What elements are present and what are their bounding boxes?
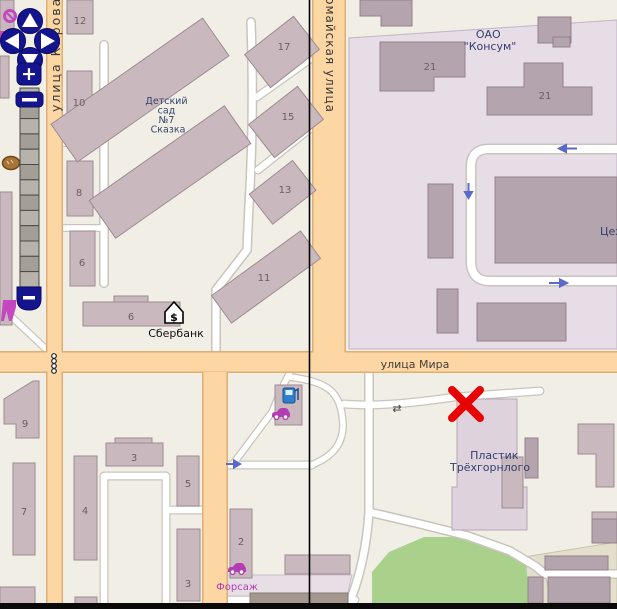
house-number: 7 [21, 507, 27, 518]
house-number: 2 [238, 537, 244, 548]
street-label-pervomayskaya: Первомайская улица [323, 0, 337, 113]
pan-up-button[interactable] [18, 9, 43, 34]
house-number: 3 [131, 453, 137, 464]
zoom-out-icon [23, 296, 35, 300]
building-3b [177, 529, 200, 601]
workshop-label: Цех [600, 225, 617, 238]
building [437, 289, 458, 333]
pan-left-button[interactable] [1, 29, 26, 54]
zoom-in-icon: + [21, 63, 37, 85]
street-label-kirova: улица Кирова [48, 0, 63, 112]
street-label-mira: улица Мира [381, 358, 450, 371]
building [548, 577, 610, 603]
house-number: 21 [424, 62, 437, 73]
map-screen: $ ⇄ 12 10 8 6 6 11 17 15 13 21 21 9 7 4 [0, 0, 617, 609]
house-number: 12 [74, 16, 87, 27]
workshop-building [495, 177, 617, 263]
zoom-in-button[interactable]: + [17, 63, 41, 85]
sberbank-label: Сбербанк [148, 327, 204, 340]
map-canvas[interactable]: $ ⇄ 12 10 8 6 6 11 17 15 13 21 21 9 7 4 [0, 0, 617, 609]
zoom-slider-handle[interactable] [16, 92, 43, 107]
house-number: 8 [76, 188, 82, 199]
house-number: 21 [539, 91, 552, 102]
gate-icon: ⇄ [392, 402, 401, 415]
bank-dollar-glyph: $ [170, 311, 178, 324]
building [428, 184, 453, 258]
building [0, 56, 9, 98]
building [285, 555, 350, 574]
house-number: 15 [282, 112, 295, 123]
slider-grip-icon [22, 98, 37, 102]
building [553, 37, 570, 47]
house-number: 10 [73, 98, 86, 109]
bakery-icon [3, 157, 20, 170]
house-number: 17 [278, 42, 291, 53]
forsazh-label: Форсаж [216, 582, 258, 593]
building [592, 519, 617, 543]
house-number: 5 [185, 479, 191, 490]
building [545, 556, 608, 570]
zoom-slider-track[interactable] [20, 88, 39, 287]
house-number: 9 [22, 419, 28, 430]
house-number: 4 [82, 506, 88, 517]
pan-right-button[interactable] [35, 29, 60, 54]
house-number: 3 [185, 579, 191, 590]
house-number: 11 [258, 273, 271, 284]
house-number: 6 [128, 312, 134, 323]
building [477, 303, 566, 341]
house-number: 6 [79, 258, 85, 269]
bottom-edge-bar [0, 603, 617, 609]
building [528, 577, 543, 603]
house-number: 13 [279, 185, 292, 196]
zoom-out-button[interactable] [17, 287, 41, 310]
